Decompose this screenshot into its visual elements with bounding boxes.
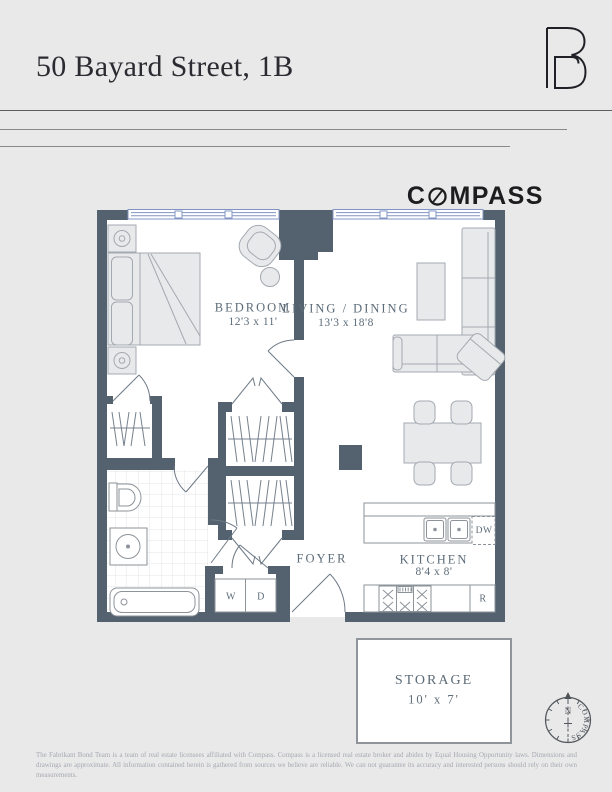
toilet-tank bbox=[109, 483, 117, 511]
dining-chair bbox=[414, 401, 435, 424]
svg-text:COMPASS: COMPASS bbox=[570, 702, 591, 743]
living-window bbox=[333, 210, 483, 220]
sofa-armrest bbox=[393, 337, 402, 370]
nightstand-bottom bbox=[108, 347, 136, 374]
console-table bbox=[417, 263, 445, 320]
living-dining-label: LIVING / DINING bbox=[282, 302, 409, 317]
storage-dims: 10' x 7' bbox=[408, 693, 460, 708]
dishwasher-label: DW bbox=[476, 526, 493, 536]
dining-chair bbox=[414, 462, 435, 485]
compass-rose-icon: N COMPASS bbox=[536, 689, 600, 751]
foyer-label: FOYER bbox=[297, 552, 348, 567]
compass-north-arrow-icon bbox=[565, 692, 572, 699]
dining-table bbox=[404, 423, 481, 463]
tub-drain bbox=[121, 599, 127, 605]
floorplan-page: 50 Bayard Street, 1B C MPASS bbox=[0, 0, 612, 792]
nightstand-top bbox=[108, 225, 136, 252]
washer-label: W bbox=[226, 592, 236, 603]
side-table bbox=[261, 268, 280, 287]
dryer-label: D bbox=[257, 592, 265, 603]
compass-curved-text: COMPASS bbox=[570, 702, 591, 743]
storage-unit-box bbox=[356, 638, 512, 744]
bedroom-label: BEDROOM bbox=[215, 301, 292, 316]
living-dining-dims: 13'3 x 18'8 bbox=[318, 317, 374, 329]
kitchen-dims: 8'4 x 8' bbox=[416, 566, 453, 578]
pillow bbox=[112, 257, 133, 300]
dining-chair bbox=[451, 462, 472, 485]
toilet bbox=[117, 484, 141, 511]
floor-plan-drawing bbox=[0, 0, 612, 792]
refrigerator-label: R bbox=[479, 594, 486, 605]
compass-north-label: N bbox=[565, 706, 572, 716]
bedroom-dims: 12'3 x 11' bbox=[229, 316, 278, 328]
structural-column bbox=[339, 445, 362, 470]
bedroom-window bbox=[128, 210, 279, 220]
pillow bbox=[112, 302, 133, 345]
storage-label: STORAGE bbox=[395, 673, 473, 689]
footer-disclaimer: The Fabrikant Bond Team is a team of rea… bbox=[36, 751, 577, 781]
dining-chair bbox=[451, 401, 472, 424]
